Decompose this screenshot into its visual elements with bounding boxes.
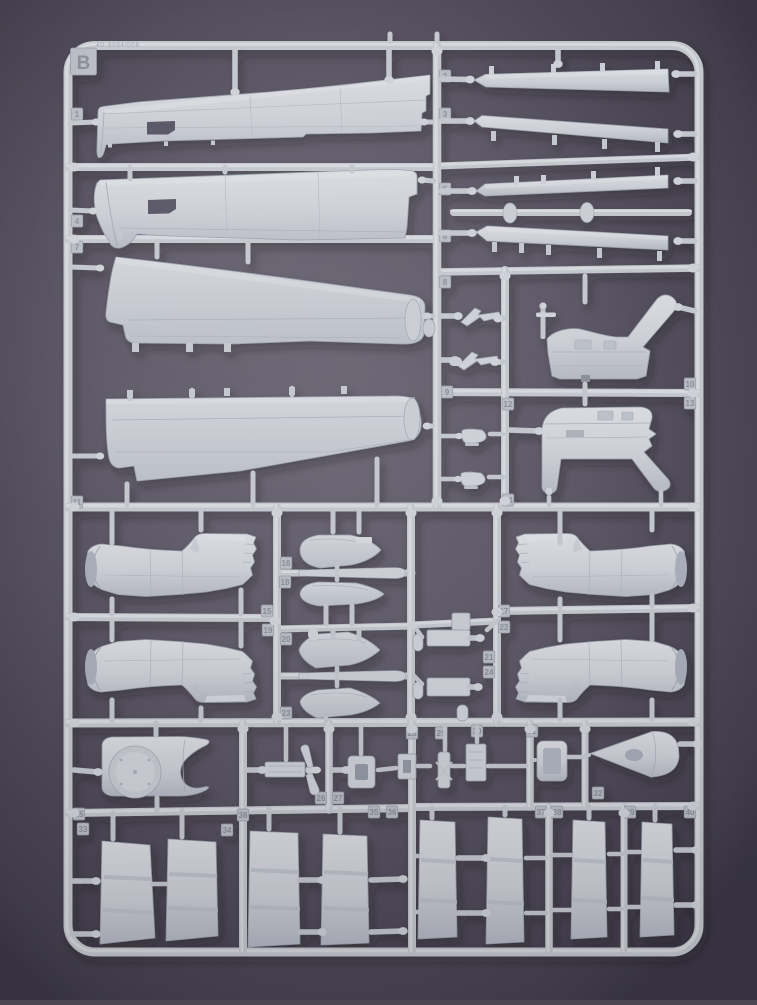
svg-text:13: 13 — [686, 399, 695, 408]
svg-text:10: 10 — [686, 380, 695, 389]
